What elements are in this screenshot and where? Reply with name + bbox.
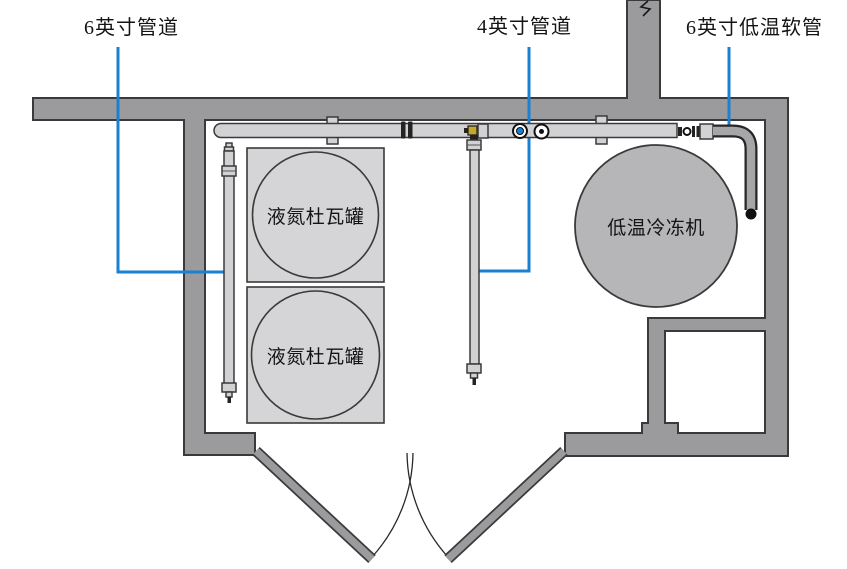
- middle-vertical-pipe: [467, 135, 481, 385]
- double-door: [256, 451, 564, 559]
- leader-line-pipe6: [118, 47, 229, 272]
- door-right-leaf: [448, 451, 564, 559]
- pipe-bottom-collar: [222, 383, 236, 392]
- door-left-leaf: [256, 451, 372, 559]
- hose-end-cap: [746, 209, 757, 220]
- pipe-bottom-collar: [467, 364, 481, 373]
- pipe-flange: [478, 124, 488, 138]
- gauge-core: [539, 129, 544, 134]
- dewar-1-label: 液氮杜瓦罐: [247, 148, 384, 282]
- pipe-bottom-stem: [471, 373, 478, 378]
- left-vertical-pipe: [222, 143, 236, 403]
- pipe-flange-pair: [408, 122, 413, 139]
- pipe-bottom-tip: [473, 378, 477, 385]
- chiller-label: 低温冷冻机: [575, 145, 737, 307]
- door-left-swing-arc: [372, 453, 413, 557]
- pipe-coupling: [678, 127, 682, 136]
- pipe-coupling: [692, 126, 695, 137]
- door-right-swing-arc: [407, 453, 448, 557]
- pipe-bottom-stem: [226, 392, 232, 397]
- pipe-coupling: [697, 126, 700, 137]
- leader-line-pipe4: [477, 47, 529, 271]
- callout-hose6-label: 6英寸低温软管: [686, 17, 823, 39]
- pipe-body: [214, 124, 677, 138]
- pipe-body: [470, 150, 479, 364]
- hose-coupling-sleeve: [700, 124, 713, 139]
- pipe-body: [224, 151, 234, 384]
- callout-pipe4-label: 4英寸管道: [477, 16, 572, 38]
- callout-pipe6-label: 6英寸管道: [84, 17, 179, 39]
- equipment-layout-diagram: 6英寸管道 4英寸管道 6英寸低温软管 液氮杜瓦罐 液氮杜瓦罐 低温冷冻机: [0, 0, 847, 569]
- valve-blue-core: [517, 128, 524, 135]
- elbow-valve: [468, 126, 477, 135]
- pipe-flange-pair: [401, 122, 406, 139]
- pipe-coupling: [684, 128, 691, 135]
- pipe-bottom-tip: [228, 397, 232, 403]
- dewar-2-label: 液氮杜瓦罐: [247, 287, 384, 423]
